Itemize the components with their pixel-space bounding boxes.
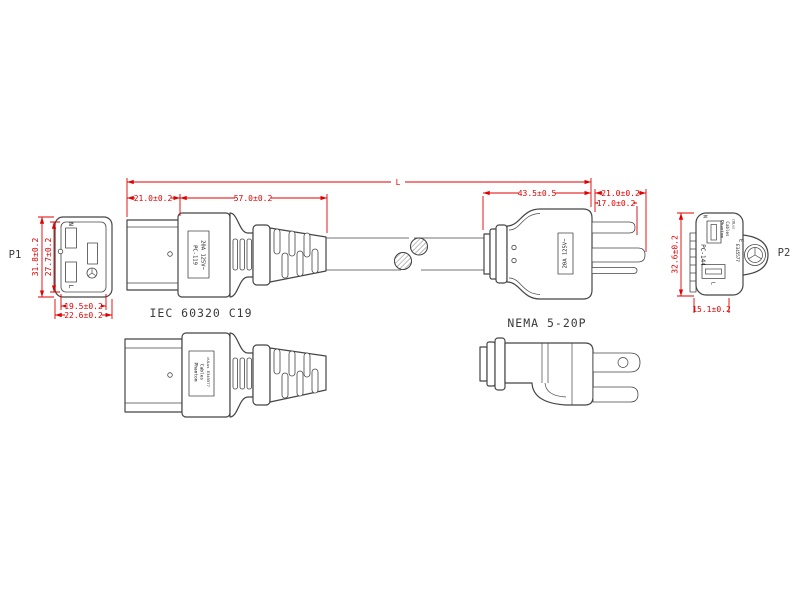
technical-drawing: N L 31.8±0.2 27.7±0.2 19.5±0.2 22.6±0.2 … <box>0 0 800 600</box>
dim-p2-height: 32.6±0.2 <box>671 235 680 274</box>
p2-pin-e-label: E <box>738 239 744 242</box>
dim-p1-inner-height: 27.7±0.2 <box>44 238 53 277</box>
c19-rating: 20A 125V~ <box>200 240 206 270</box>
p2-ground-pin-icon <box>745 245 766 266</box>
p1-label: P1 <box>9 249 22 261</box>
dim-c19-sleeve: 21.0±0.2 <box>134 194 173 203</box>
dim-nema-body: 43.5±0.5 <box>518 189 557 198</box>
dim-nema-blade-short: 17.0±0.2 <box>597 199 636 208</box>
dim-p2-width: 15.1±0.2 <box>692 305 731 314</box>
p2-face-view: N L E PC-144 Phantom Cables cULus E34557… <box>690 213 768 295</box>
p1-earth-screw-icon <box>87 268 97 278</box>
latch-hole <box>58 249 63 254</box>
nema-side-view: 20A 125V~ <box>484 209 645 299</box>
p2-label: P2 <box>778 247 791 259</box>
nema-rating: 20A 125V~ <box>563 238 569 268</box>
p2-brand2: Cables <box>725 221 730 237</box>
power-cord-drawing: N L 31.8±0.2 27.7±0.2 19.5±0.2 22.6±0.2 … <box>0 0 800 600</box>
nema-neutral-blade <box>592 248 645 262</box>
p1-pin-l-label: L <box>67 285 74 289</box>
nema-hot-blade <box>592 222 635 233</box>
nema-ground-pin-top-view <box>593 387 638 402</box>
c19-part-no: PC-119 <box>192 245 198 265</box>
dim-p1-outer-height: 31.8±0.2 <box>31 238 40 277</box>
c19-brand2: Cables <box>199 364 205 381</box>
nema-bottom-view <box>480 338 640 405</box>
dim-c19-body: 57.0±0.2 <box>234 194 273 203</box>
c19-bottom-view: Phantom Cables cULus E345577 <box>125 333 326 417</box>
p2-pin-n-label: N <box>702 215 708 218</box>
cable <box>326 238 485 270</box>
p2-pin-l-label: L <box>710 282 716 285</box>
dim-p1-inner-width: 19.5±0.2 <box>64 302 103 311</box>
cable-break-icon <box>395 238 428 270</box>
dim-p1-outer-width: 22.6±0.2 <box>64 311 103 320</box>
p1-face-view: N L <box>55 217 112 297</box>
c19-ul-file: cULus E345577 <box>206 357 211 387</box>
p2-brand1: Phantom <box>720 220 725 238</box>
c19-brand1: Phantom <box>193 363 199 382</box>
c19-name-label: IEC 60320 C19 <box>149 306 252 320</box>
p2-ul-mark: cULus <box>732 219 736 230</box>
nema-blade-top-view <box>593 353 640 372</box>
nema-ground-pin <box>592 268 637 274</box>
c19-side-view: PC-119 20A 125V~ <box>127 213 326 297</box>
nema-name-label: NEMA 5-20P <box>507 316 586 330</box>
p1-line-slot <box>66 262 77 282</box>
p1-pin-n-label: N <box>67 222 74 226</box>
dim-nema-blade-long: 21.0±0.2 <box>601 189 640 198</box>
p1-earth-slot <box>88 243 98 264</box>
dim-overall-length: L <box>396 178 401 187</box>
p2-part-no: PC-144 <box>699 244 706 266</box>
p1-neutral-slot <box>66 228 77 248</box>
p2-ul-file: E345577 <box>735 244 740 262</box>
